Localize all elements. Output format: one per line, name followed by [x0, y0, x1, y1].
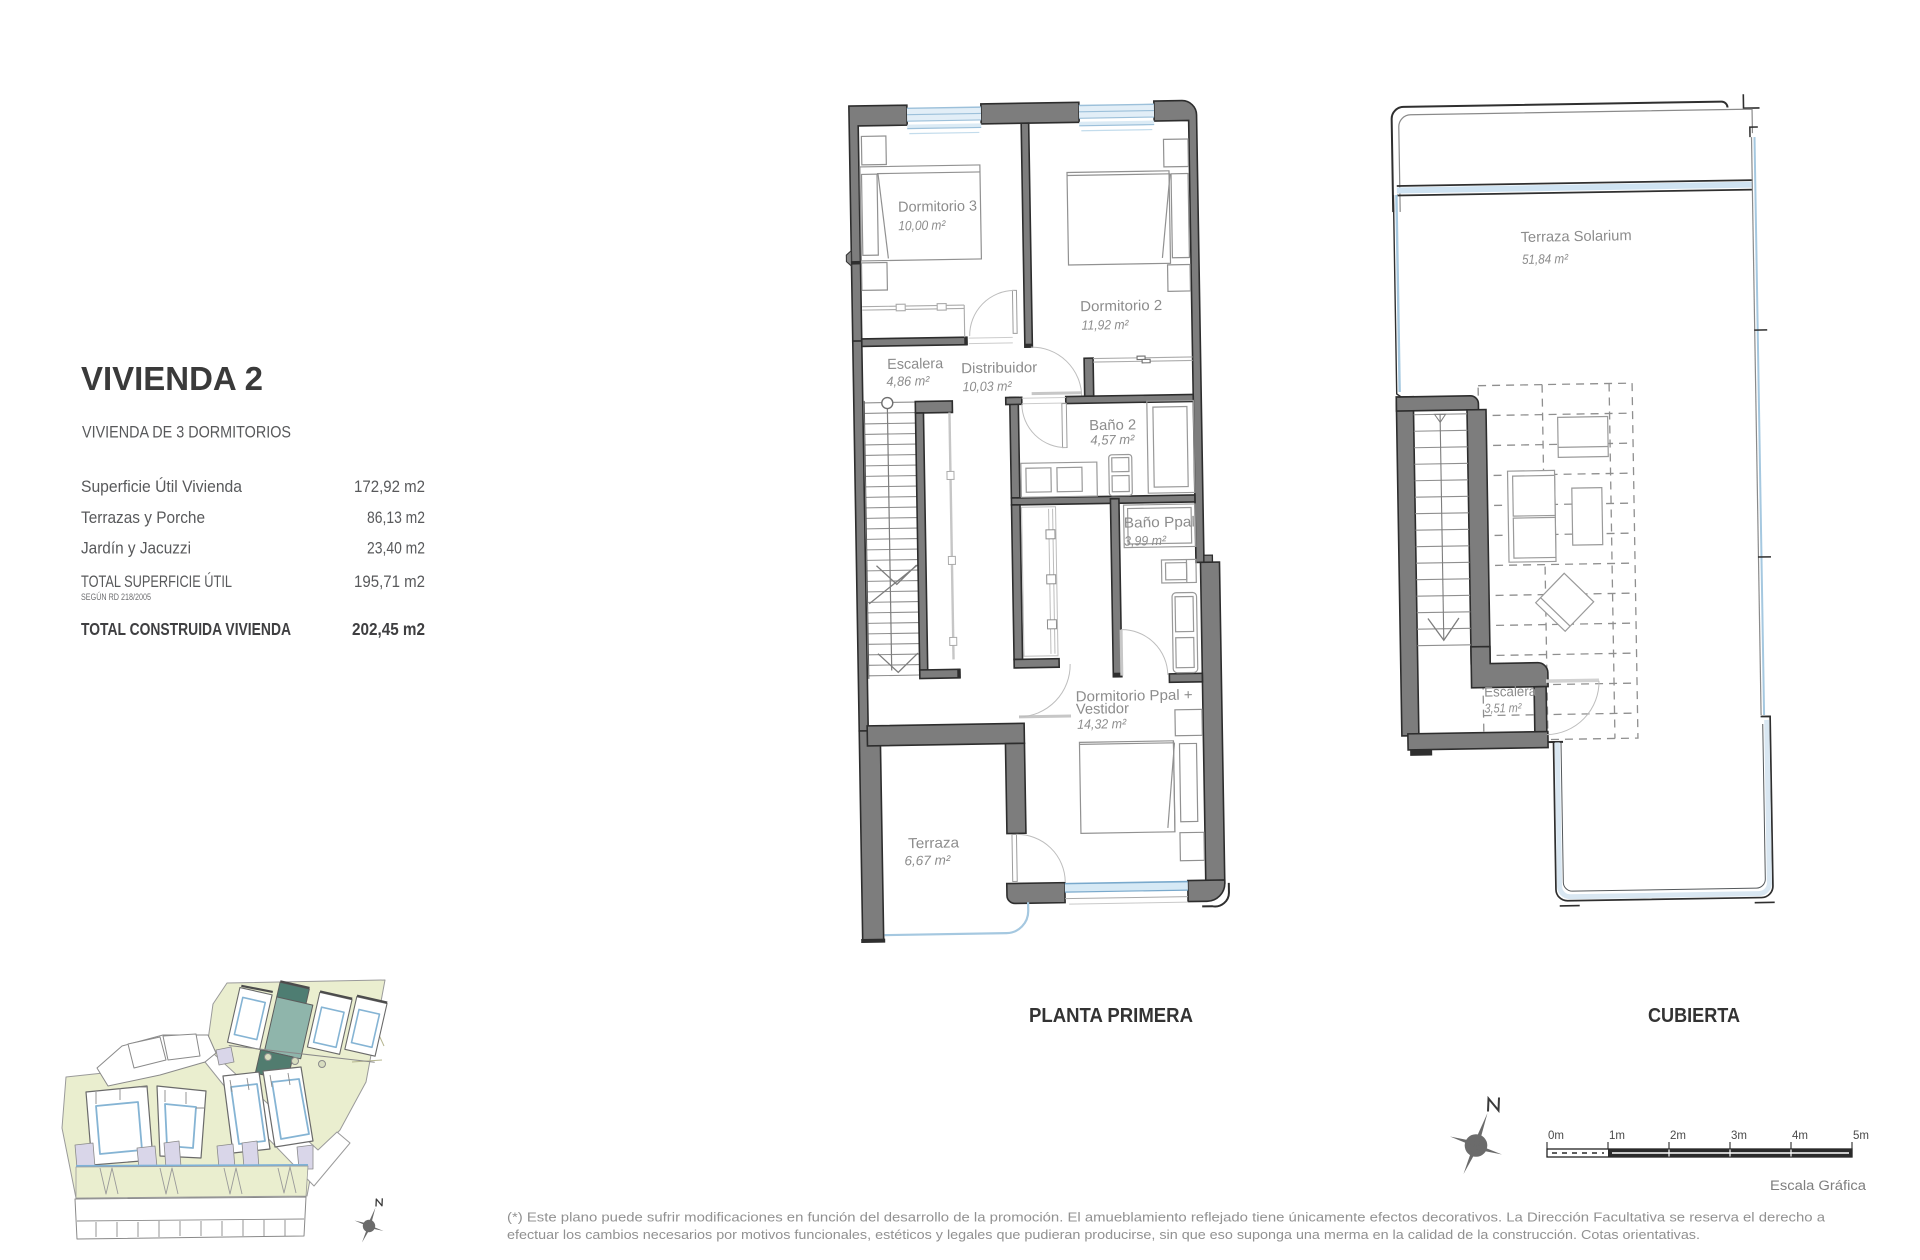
svg-text:4,86 m²: 4,86 m² [886, 373, 930, 389]
svg-text:10,03 m²: 10,03 m² [962, 378, 1012, 394]
svg-text:86,13 m2: 86,13 m2 [367, 508, 425, 527]
svg-text:Escala Gráfica: Escala Gráfica [1770, 1178, 1867, 1193]
svg-text:3,51 m²: 3,51 m² [1484, 700, 1522, 716]
svg-text:Escalera: Escalera [887, 356, 944, 373]
svg-text:TOTAL CONSTRUIDA VIVIENDA: TOTAL CONSTRUIDA VIVIENDA [81, 619, 291, 639]
svg-text:Dormitorio 2: Dormitorio 2 [1080, 298, 1162, 315]
svg-text:23,40 m2: 23,40 m2 [367, 539, 425, 558]
svg-text:172,92 m2: 172,92 m2 [354, 477, 425, 496]
svg-text:Distribuidor: Distribuidor [961, 360, 1037, 377]
svg-text:11,92 m²: 11,92 m² [1081, 317, 1129, 333]
svg-text:Dormitorio 3: Dormitorio 3 [898, 198, 977, 215]
svg-text:4m: 4m [1792, 1130, 1808, 1142]
svg-text:202,45 m2: 202,45 m2 [352, 619, 425, 639]
svg-text:SEGÚN RD 218/2005: SEGÚN RD 218/2005 [81, 592, 151, 602]
svg-text:51,84 m²: 51,84 m² [1522, 251, 1569, 267]
svg-text:Jardín y Jacuzzi: Jardín y Jacuzzi [81, 539, 191, 558]
svg-text:Terrazas y Porche: Terrazas y Porche [81, 508, 205, 527]
svg-text:5m: 5m [1853, 1130, 1869, 1142]
svg-text:1m: 1m [1609, 1130, 1625, 1142]
svg-text:10,00 m²: 10,00 m² [898, 218, 946, 234]
svg-text:VIVIENDA DE 3 DORMITORIOS: VIVIENDA DE 3 DORMITORIOS [82, 424, 291, 442]
svg-text:3,99 m²: 3,99 m² [1124, 533, 1167, 549]
svg-text:6,67 m²: 6,67 m² [904, 853, 951, 869]
svg-text:PLANTA PRIMERA: PLANTA PRIMERA [1029, 1005, 1193, 1027]
svg-text:0m: 0m [1548, 1130, 1564, 1142]
svg-text:4,57 m²: 4,57 m² [1090, 432, 1135, 448]
svg-text:Terraza: Terraza [908, 835, 960, 852]
svg-text:Escalera: Escalera [1484, 683, 1536, 700]
svg-text:Terraza Solarium: Terraza Solarium [1521, 228, 1632, 246]
svg-text:3m: 3m [1731, 1130, 1747, 1142]
svg-text:TOTAL SUPERFICIE ÚTIL: TOTAL SUPERFICIE ÚTIL [81, 572, 232, 591]
svg-text:Baño Ppal: Baño Ppal [1124, 514, 1195, 531]
svg-text:CUBIERTA: CUBIERTA [1648, 1005, 1740, 1027]
svg-text:VIVIENDA 2: VIVIENDA 2 [81, 361, 263, 398]
svg-text:Superficie Útil Vivienda: Superficie Útil Vivienda [81, 477, 243, 496]
svg-text:195,71 m2: 195,71 m2 [354, 572, 425, 591]
svg-text:(*) Este plano puede sufrir mo: (*) Este plano puede sufrir modificacion… [507, 1210, 1826, 1225]
svg-text:14,32 m²: 14,32 m² [1077, 716, 1127, 732]
svg-text:efectuar los cambios necesario: efectuar los cambios necesarios por moti… [507, 1227, 1700, 1242]
svg-text:2m: 2m [1670, 1130, 1686, 1142]
